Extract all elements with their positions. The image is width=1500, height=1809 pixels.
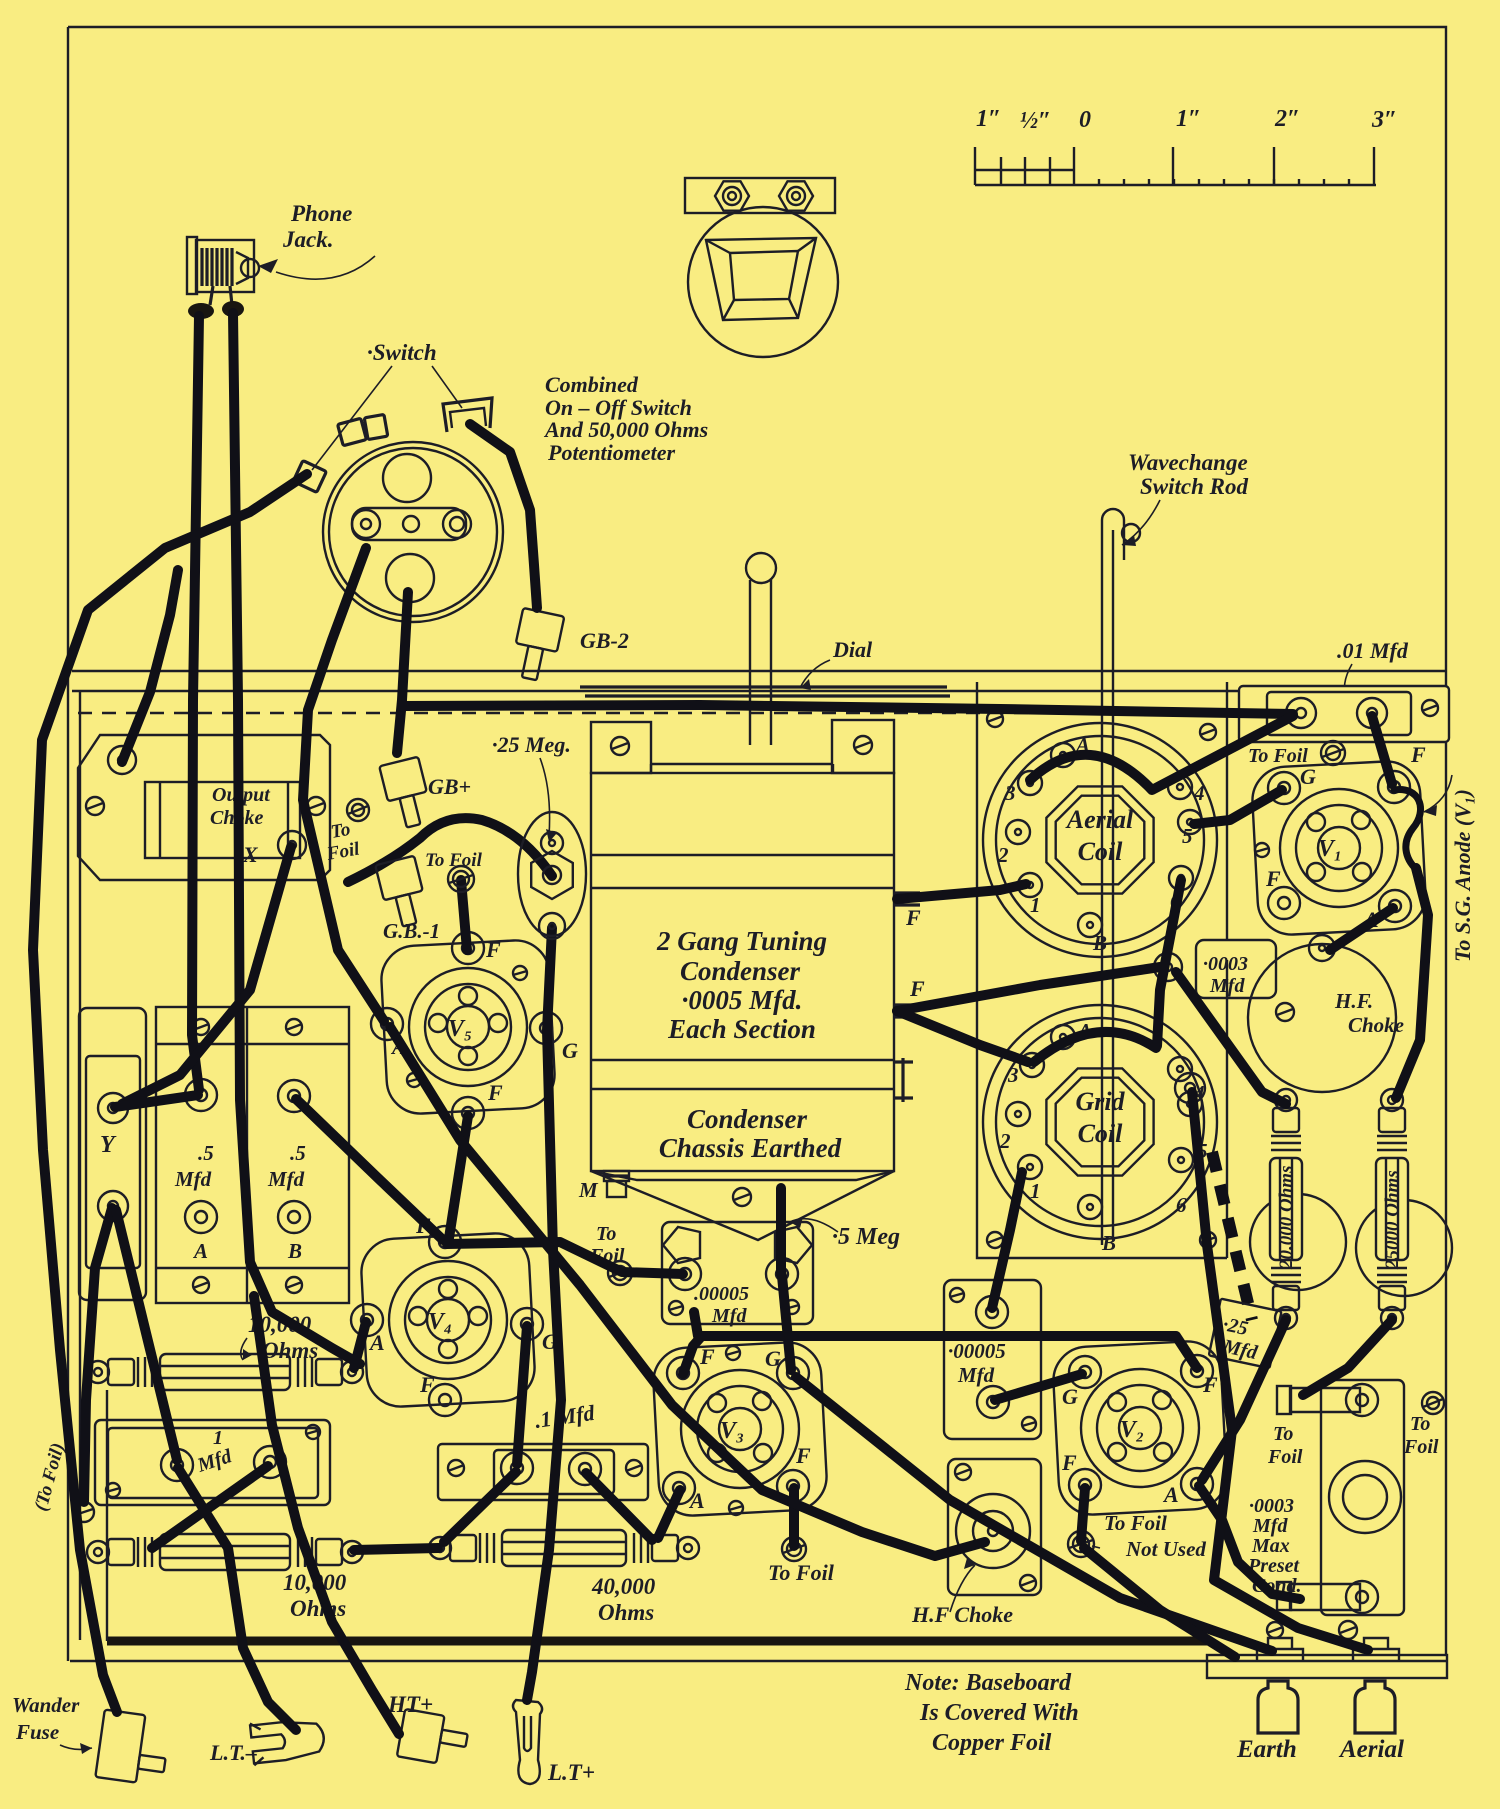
svg-text:.5: .5 <box>290 1141 306 1165</box>
svg-text:1″: 1″ <box>1176 106 1201 132</box>
svg-text:Ohms: Ohms <box>290 1596 346 1621</box>
svg-text:1: 1 <box>213 1427 223 1449</box>
svg-text:Aerial: Aerial <box>1065 805 1134 834</box>
svg-text:F: F <box>699 1344 715 1369</box>
svg-text:G: G <box>765 1346 781 1371</box>
svg-text:·25 Meg.: ·25 Meg. <box>492 732 571 757</box>
svg-text:Ohms: Ohms <box>262 1338 318 1363</box>
svg-text:A: A <box>192 1239 208 1263</box>
svg-text:G: G <box>562 1038 578 1063</box>
svg-text:V₄: V₄ <box>428 1309 452 1335</box>
svg-text:Combined: Combined <box>545 372 639 397</box>
svg-text:20.000 Ohms: 20.000 Ohms <box>1276 1166 1297 1270</box>
svg-text:Earth: Earth <box>1236 1736 1297 1763</box>
svg-text:6: 6 <box>1176 1193 1187 1217</box>
svg-text:V₃: V₃ <box>720 1418 744 1444</box>
svg-text:Grid: Grid <box>1075 1087 1125 1116</box>
svg-text:1: 1 <box>1030 893 1041 917</box>
svg-text:4: 4 <box>1193 781 1205 805</box>
svg-text:Each Section: Each Section <box>667 1014 816 1044</box>
svg-text:Foil: Foil <box>1267 1446 1303 1468</box>
svg-text:Mfd: Mfd <box>267 1167 305 1191</box>
svg-text:2: 2 <box>997 843 1009 867</box>
svg-text:F: F <box>905 905 921 930</box>
svg-text:25000 Ohms: 25000 Ohms <box>1382 1170 1403 1270</box>
svg-text:2 Gang Tuning: 2 Gang Tuning <box>656 926 827 956</box>
svg-text:Wavechange: Wavechange <box>1128 450 1248 475</box>
svg-text:Chassis Earthed: Chassis Earthed <box>659 1133 842 1163</box>
svg-text:1″: 1″ <box>976 106 1001 132</box>
svg-text:Mfd: Mfd <box>1209 975 1245 997</box>
svg-text:Is Covered With: Is Covered With <box>919 1700 1079 1726</box>
svg-text:·Switch: ·Switch <box>367 340 437 365</box>
svg-text:F: F <box>1410 742 1426 767</box>
svg-text:Jack.: Jack. <box>282 227 333 252</box>
svg-text:B: B <box>1101 1231 1116 1255</box>
svg-text:Mfd: Mfd <box>1252 1515 1288 1537</box>
svg-text:·00005: ·00005 <box>948 1339 1006 1363</box>
svg-text:V₁: V₁ <box>1318 836 1342 862</box>
svg-text:G: G <box>1062 1384 1078 1409</box>
svg-text:1: 1 <box>1030 1179 1041 1203</box>
svg-text:Foil: Foil <box>1403 1436 1439 1458</box>
svg-text:Y: Y <box>100 1132 117 1158</box>
svg-text:To Foil: To Foil <box>1104 1511 1167 1535</box>
svg-text:0: 0 <box>1079 107 1091 133</box>
svg-text:·5 Meg: ·5 Meg <box>832 1224 900 1250</box>
svg-text:Mfd: Mfd <box>174 1167 212 1191</box>
svg-text:·0003: ·0003 <box>1249 1495 1294 1517</box>
svg-text:½″: ½″ <box>1020 108 1051 134</box>
svg-text:B: B <box>287 1239 302 1263</box>
svg-text:V₂: V₂ <box>1120 1417 1144 1443</box>
svg-text:Max: Max <box>1251 1535 1290 1557</box>
svg-text:F: F <box>419 1372 435 1397</box>
svg-text:3: 3 <box>1007 1063 1019 1087</box>
svg-text:Coil: Coil <box>1078 837 1124 866</box>
svg-text:F: F <box>1202 1372 1218 1397</box>
svg-text:Condenser: Condenser <box>687 1104 808 1134</box>
svg-text:A: A <box>688 1488 705 1513</box>
svg-text:X: X <box>242 842 259 867</box>
svg-text:Copper Foil: Copper Foil <box>932 1730 1052 1756</box>
svg-text:GB+: GB+ <box>428 774 471 799</box>
svg-text:Aerial: Aerial <box>1338 1736 1404 1763</box>
svg-text:H.F Choke: H.F Choke <box>911 1602 1013 1627</box>
svg-text:3″: 3″ <box>1371 107 1397 133</box>
svg-text:Mfd: Mfd <box>957 1363 995 1387</box>
svg-text:Condenser: Condenser <box>680 956 801 986</box>
svg-text:To S.G. Anode (V₁): To S.G. Anode (V₁) <box>1450 789 1475 962</box>
svg-text:F: F <box>487 1080 503 1105</box>
svg-text:A: A <box>1162 1482 1179 1507</box>
svg-text:·0005 Mfd.: ·0005 Mfd. <box>682 985 803 1015</box>
svg-text:To Foil: To Foil <box>768 1560 835 1585</box>
svg-text:2: 2 <box>999 1129 1011 1153</box>
svg-text:40,000: 40,000 <box>591 1574 656 1599</box>
svg-text:L.T+: L.T+ <box>547 1760 595 1785</box>
svg-text:.5: .5 <box>198 1141 214 1165</box>
svg-text:Wander: Wander <box>12 1693 80 1717</box>
svg-text:Switch Rod: Switch Rod <box>1140 474 1249 499</box>
svg-text:Potentiometer: Potentiometer <box>547 440 676 465</box>
svg-text:To: To <box>1410 1413 1430 1435</box>
svg-text:3: 3 <box>1004 781 1016 805</box>
svg-text:HT+: HT+ <box>387 1692 433 1717</box>
svg-text:.01 Mfd: .01 Mfd <box>1337 638 1409 663</box>
svg-text:Fuse: Fuse <box>15 1720 59 1744</box>
svg-text:H.F.: H.F. <box>1334 989 1373 1013</box>
svg-text:2″: 2″ <box>1274 106 1300 132</box>
svg-text:A: A <box>368 1330 385 1355</box>
svg-text:F: F <box>795 1443 811 1468</box>
svg-text:GB-2: GB-2 <box>580 628 629 653</box>
svg-text:Dial: Dial <box>832 637 873 662</box>
svg-text:To: To <box>596 1223 616 1245</box>
svg-text:F: F <box>1061 1450 1077 1475</box>
svg-text:G: G <box>1300 764 1316 789</box>
svg-text:·0003: ·0003 <box>1203 953 1248 975</box>
svg-text:Note: Baseboard: Note: Baseboard <box>904 1670 1072 1696</box>
svg-text:And 50,000 Ohms: And 50,000 Ohms <box>543 417 708 442</box>
svg-text:G.B.-1: G.B.-1 <box>383 919 440 943</box>
svg-text:Ohms: Ohms <box>598 1600 654 1625</box>
svg-text:To: To <box>1273 1423 1293 1445</box>
svg-text:Not Used: Not Used <box>1125 1537 1206 1561</box>
svg-text:B: B <box>1092 931 1107 955</box>
svg-text:F: F <box>909 976 925 1001</box>
svg-text:.00005: .00005 <box>694 1283 749 1305</box>
svg-text:M: M <box>578 1178 599 1202</box>
svg-text:V₅: V₅ <box>448 1016 472 1042</box>
svg-text:Phone: Phone <box>290 201 352 226</box>
svg-text:Choke: Choke <box>1348 1013 1404 1037</box>
svg-text:F: F <box>485 937 501 962</box>
svg-text:Mfd: Mfd <box>711 1305 747 1327</box>
svg-text:L.T.–: L.T.– <box>209 1740 257 1765</box>
svg-text:F: F <box>1265 866 1281 891</box>
svg-text:Coil: Coil <box>1078 1119 1124 1148</box>
